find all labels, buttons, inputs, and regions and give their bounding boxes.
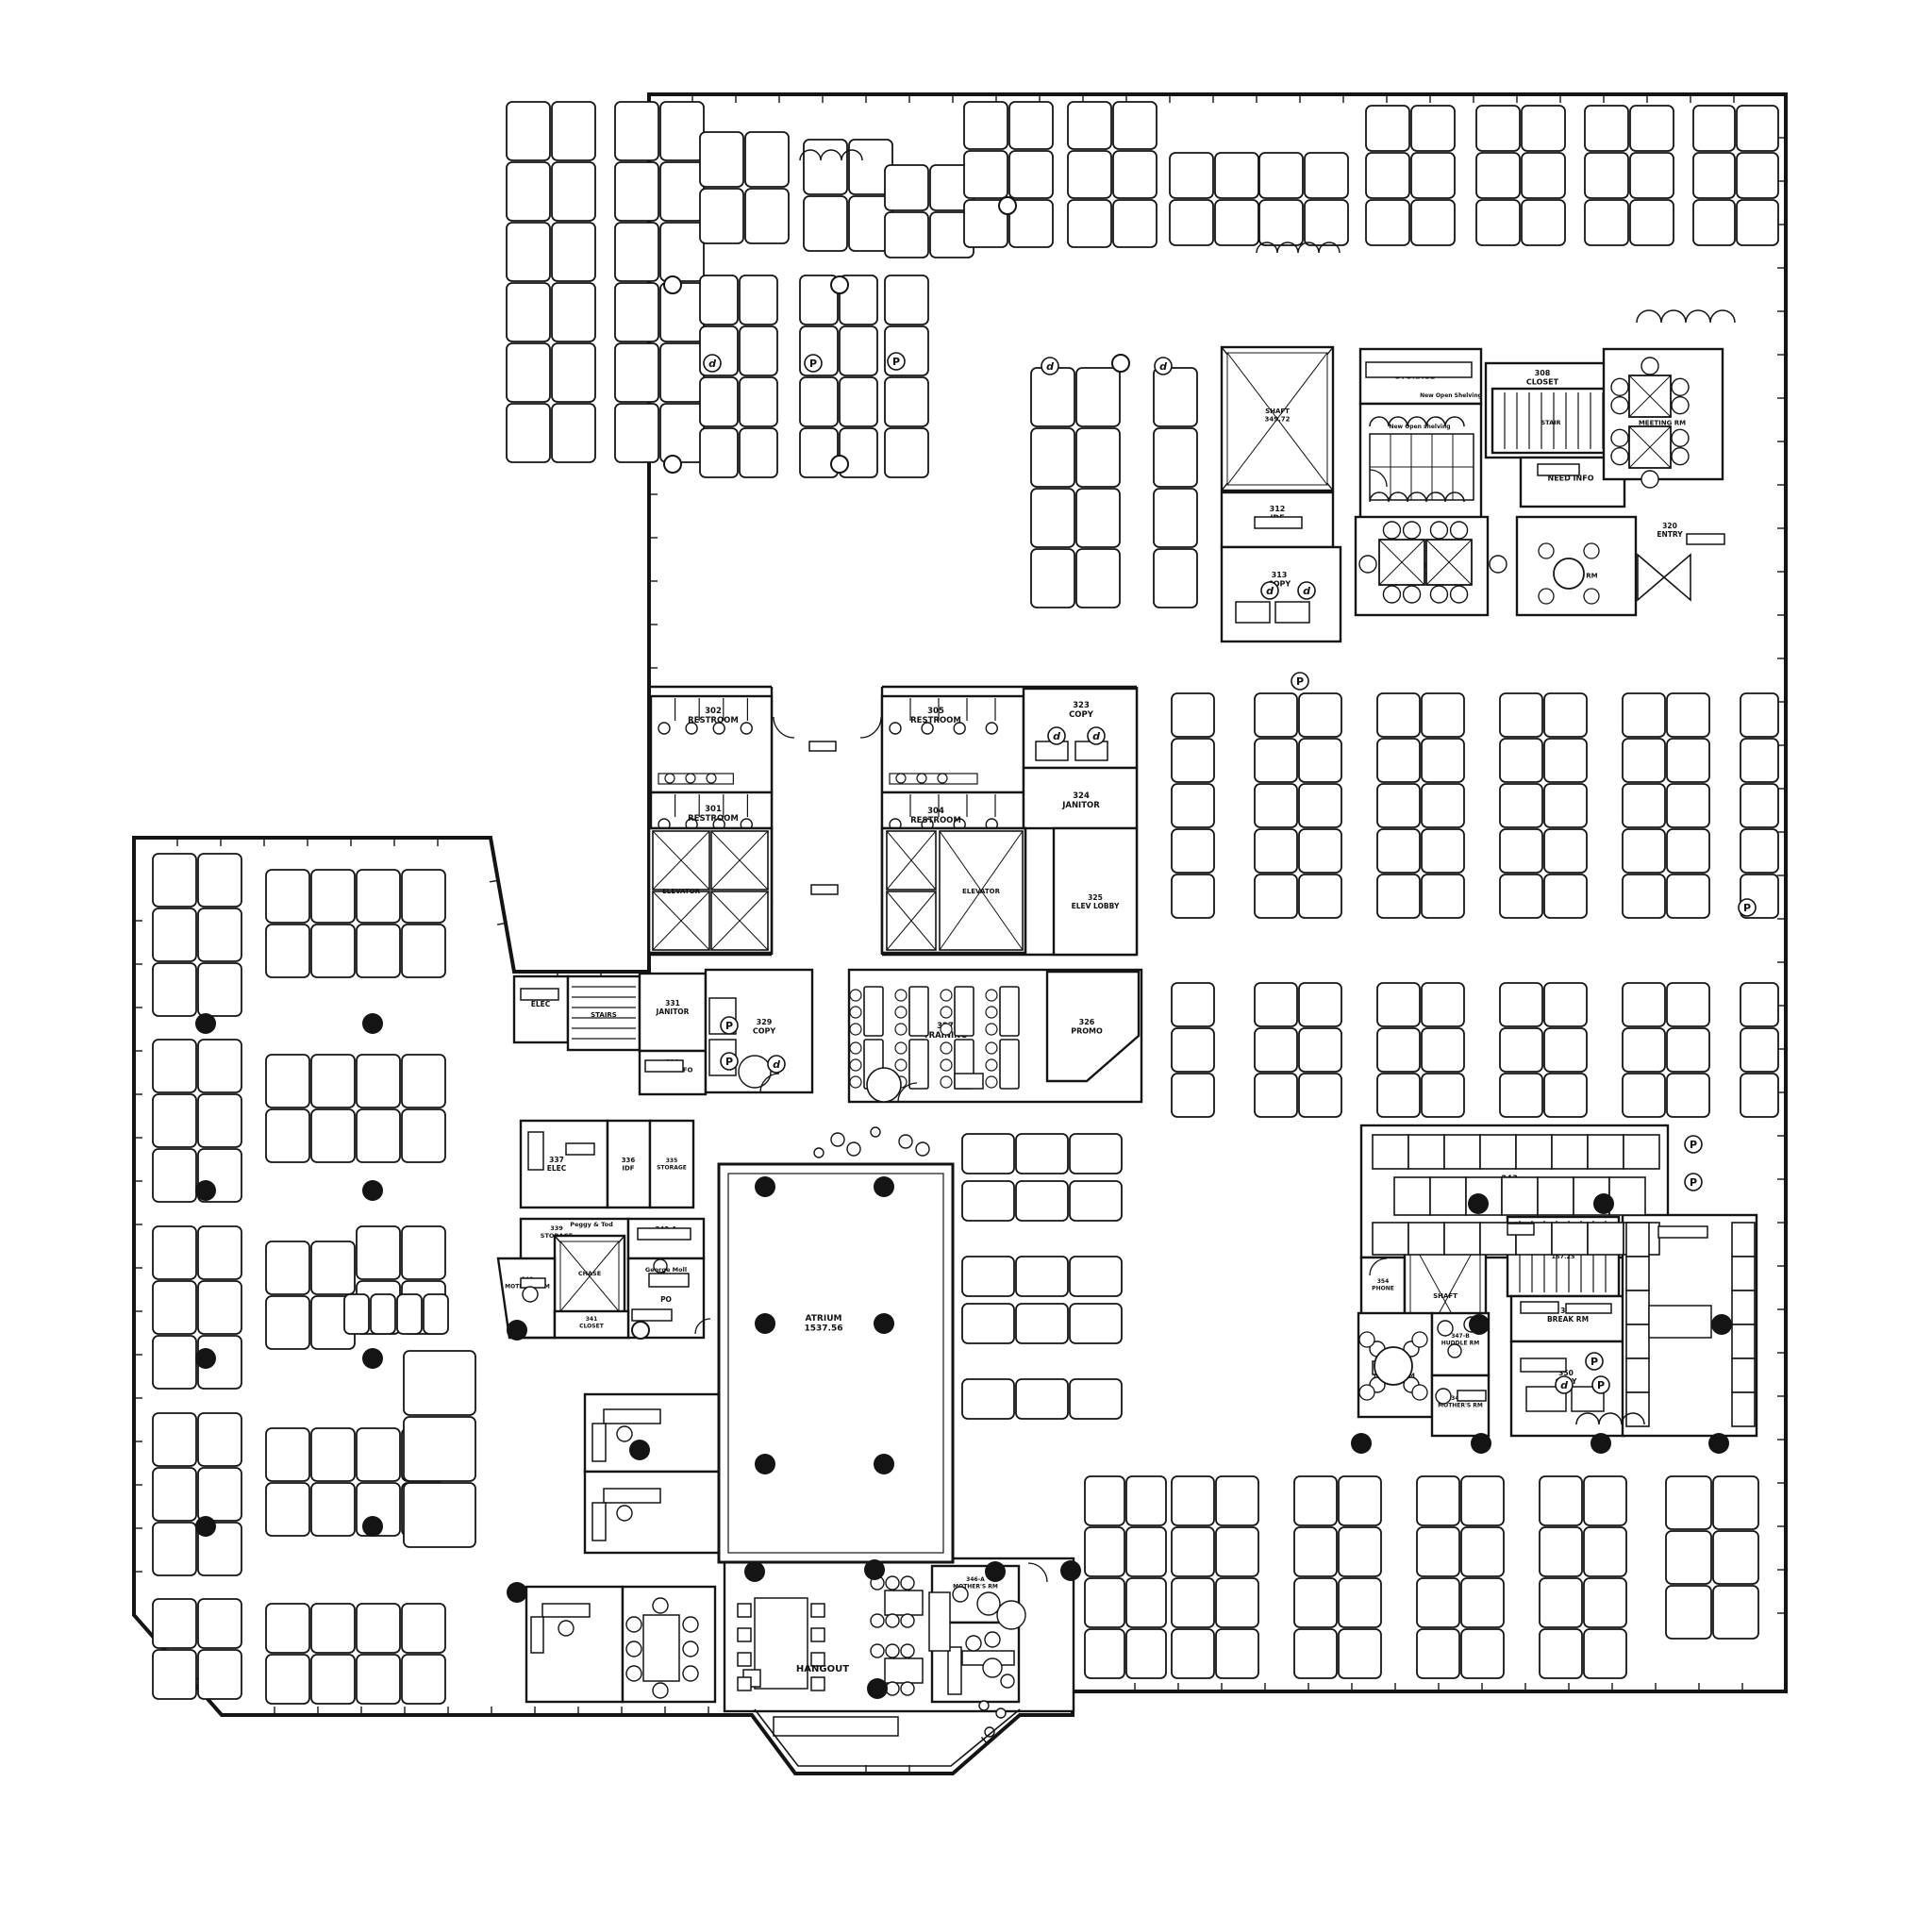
desk: [1476, 200, 1520, 245]
printer-symbol: P: [721, 1017, 738, 1034]
desk: [1031, 549, 1074, 608]
desk: [1068, 102, 1111, 149]
desk: [266, 1428, 309, 1481]
desk: [1339, 1527, 1381, 1576]
desk: [1031, 489, 1074, 547]
room-label: STAIRS: [591, 1011, 617, 1019]
desk: [700, 428, 738, 477]
symbol-letter: d: [1560, 1379, 1568, 1391]
desk: [1500, 829, 1542, 873]
desk: [1461, 1476, 1504, 1525]
desk: [153, 1468, 196, 1521]
desk: [800, 377, 838, 426]
atrium: [719, 1164, 953, 1562]
chair: [1539, 589, 1554, 604]
desk: [1740, 1028, 1778, 1072]
desk: [885, 275, 928, 325]
desk: [311, 1655, 355, 1704]
symbol-letter: d: [1053, 730, 1060, 742]
desk: [1713, 1476, 1758, 1529]
chair: [977, 1592, 1000, 1615]
column-open: [1112, 355, 1129, 372]
room-label: SHAFT: [1433, 1292, 1457, 1300]
column-filled: [755, 1313, 775, 1334]
room-313-copy: 313COPY: [1222, 547, 1341, 641]
chair: [1672, 397, 1689, 414]
desk: [1500, 693, 1542, 737]
training-table: [909, 1040, 928, 1089]
desk: [153, 1094, 196, 1147]
desk: [1299, 983, 1341, 1026]
presenter-table: [867, 1068, 901, 1102]
chair: [1584, 543, 1599, 558]
column-open: [632, 1322, 649, 1339]
desk: [1031, 368, 1074, 426]
desk: [357, 1655, 400, 1704]
chair: [1438, 1321, 1453, 1336]
desk: [1299, 874, 1341, 918]
chair: [1001, 1674, 1014, 1688]
chair: [953, 1587, 968, 1602]
desk: [1623, 784, 1665, 827]
desk: [311, 924, 355, 977]
chair: [617, 1426, 632, 1441]
chair: [886, 1614, 899, 1627]
desk: [615, 162, 658, 221]
desk: [1294, 1629, 1337, 1678]
training-chair: [850, 990, 861, 1001]
symbol-letter: P: [809, 358, 817, 370]
filing-bench-cell: [1430, 1177, 1466, 1215]
filing-bench-cell: [1444, 1135, 1480, 1169]
furniture-item: [649, 1274, 689, 1287]
desk: [1377, 829, 1420, 873]
desk: [507, 404, 550, 462]
furniture-item: [604, 1489, 660, 1503]
desk: [1667, 829, 1709, 873]
desk-pod: [962, 1304, 1122, 1343]
column-filled: [195, 1348, 216, 1369]
training-chair: [850, 1042, 861, 1054]
desk: [840, 377, 877, 426]
data-symbol: d: [1261, 582, 1278, 599]
furniture-item: [1538, 464, 1579, 475]
column-filled: [1469, 1314, 1490, 1335]
desk: [1667, 784, 1709, 827]
chair: [1451, 522, 1468, 539]
desk: [1476, 106, 1520, 151]
toilet-fixture: [658, 723, 670, 734]
desk: [1584, 1476, 1626, 1525]
chair: [1412, 1385, 1427, 1400]
desk: [885, 377, 928, 426]
chair: [1430, 522, 1447, 539]
desk: [800, 428, 838, 477]
chair: [916, 1142, 929, 1156]
desk: [198, 1040, 241, 1092]
column-open: [664, 276, 681, 293]
symbol-letter: P: [1690, 1176, 1697, 1189]
desk: [1255, 784, 1297, 827]
filing-bench-cell: [1394, 1177, 1430, 1215]
desk: [1339, 1476, 1381, 1525]
desk: [1666, 1476, 1711, 1529]
desk: [1713, 1531, 1758, 1584]
chair: [653, 1598, 668, 1613]
column-filled: [507, 1320, 527, 1341]
desk: [1476, 153, 1520, 198]
desk: [1085, 1527, 1124, 1576]
desk: [1172, 1629, 1214, 1678]
data-symbol: d: [1048, 727, 1065, 744]
chair: [871, 1127, 880, 1137]
furniture-item: [592, 1503, 606, 1541]
desk: [1255, 983, 1297, 1026]
desk: [1623, 739, 1665, 782]
mail-rack-cell: [1626, 1257, 1649, 1291]
filing-bench-cell: [1444, 1223, 1480, 1255]
desk: [615, 102, 658, 160]
data-symbol: d: [704, 355, 721, 372]
desk: [1172, 1074, 1214, 1117]
training-table: [955, 987, 974, 1036]
desk: [153, 908, 196, 961]
desk: [1667, 1028, 1709, 1072]
sink: [707, 774, 716, 783]
desk: [1113, 151, 1157, 198]
desk: [198, 963, 241, 1016]
room-331-janitor: 331JANITOR: [640, 974, 706, 1051]
furniture-item: [1566, 1304, 1611, 1313]
desk: [507, 102, 550, 160]
filing-bench-cell: [1552, 1135, 1588, 1169]
desk: [1630, 200, 1674, 245]
chair: [1412, 1332, 1427, 1347]
column-filled: [195, 1180, 216, 1201]
furniture-item: [948, 1647, 961, 1694]
annotation-text: ATRIUM1537.56: [805, 1314, 843, 1334]
desk: [1126, 1527, 1166, 1576]
room-324-janitor: 324JANITOR: [1024, 768, 1137, 828]
training-chair: [986, 1007, 997, 1018]
desk: [1585, 153, 1628, 198]
desk: [1377, 739, 1420, 782]
training-chair: [850, 1076, 861, 1088]
chair: [1611, 429, 1628, 446]
room-330-need-info: 330NEED INFO: [640, 1051, 706, 1094]
desk: [153, 1599, 196, 1648]
desk: [1667, 693, 1709, 737]
desk: [1667, 874, 1709, 918]
desk: [1070, 1134, 1122, 1174]
desk: [804, 196, 847, 251]
desk: [1172, 829, 1214, 873]
desk: [1417, 1527, 1459, 1576]
desk: [1666, 1586, 1711, 1639]
desk: [1294, 1578, 1337, 1627]
desk: [700, 189, 743, 243]
desk: [402, 870, 445, 923]
training-chair: [941, 1042, 952, 1054]
chair: [901, 1644, 914, 1657]
furniture-item: [566, 1143, 594, 1155]
desk: [552, 223, 595, 281]
desk: [1740, 739, 1778, 782]
desk: [402, 1604, 445, 1653]
room-302-restroom: 302RESTROOM: [651, 696, 772, 792]
mail-rack-cell: [1732, 1291, 1755, 1324]
desk: [840, 326, 877, 375]
desk: [1154, 549, 1197, 608]
desk: [1172, 739, 1214, 782]
desk: [615, 223, 658, 281]
printer-symbol: P: [1586, 1353, 1603, 1370]
furniture-item: [885, 1658, 923, 1683]
furniture-item: [643, 1615, 679, 1681]
desk: [962, 1379, 1014, 1419]
chair: [1641, 358, 1658, 375]
room-label: 336IDF: [622, 1157, 636, 1173]
desk: [552, 162, 595, 221]
desk: [1540, 1476, 1582, 1525]
desk-pod: [962, 1181, 1122, 1221]
furniture-item: [632, 1309, 672, 1321]
printer-symbol: P: [888, 353, 905, 370]
desk: [700, 132, 743, 187]
desk: [266, 1483, 309, 1536]
desk: [371, 1294, 395, 1334]
data-symbol: d: [1556, 1376, 1573, 1393]
chair: [617, 1506, 632, 1521]
training-chair: [850, 1059, 861, 1071]
furniture-item: [521, 1278, 545, 1288]
desk: [311, 1055, 355, 1108]
training-chair: [941, 1024, 952, 1035]
room-305-restroom: 305RESTROOM: [882, 696, 1024, 792]
desk: [1305, 200, 1348, 245]
desk: [552, 283, 595, 341]
desk: [740, 326, 777, 375]
desk-pod: [1740, 983, 1778, 1117]
chair: [886, 1682, 899, 1695]
desk: [1070, 1181, 1122, 1221]
symbol-letter: d: [1092, 730, 1100, 742]
desk: [1154, 428, 1197, 487]
desk: [1584, 1578, 1626, 1627]
desk: [1585, 200, 1628, 245]
desk: [660, 343, 704, 402]
filing-bench-cell: [1502, 1177, 1538, 1215]
desk: [1500, 739, 1542, 782]
filing-bench-cell: [1373, 1135, 1408, 1169]
desk: [1693, 106, 1735, 151]
desk: [1422, 693, 1464, 737]
chair: [983, 1658, 1002, 1677]
furniture-item: [531, 1617, 543, 1653]
sink: [665, 774, 675, 783]
open-shelving: [1370, 434, 1474, 500]
desk: [1294, 1476, 1337, 1525]
desk: [1009, 102, 1053, 149]
desk: [1500, 874, 1542, 918]
chair: [831, 1133, 844, 1146]
column-filled: [867, 1678, 888, 1699]
chair: [1383, 586, 1400, 603]
room-chase: CHASE: [555, 1236, 625, 1317]
desk-pod: [1172, 693, 1214, 918]
training-chair: [895, 1007, 907, 1018]
column-open: [831, 456, 848, 473]
chair: [683, 1641, 698, 1657]
mail-rack-cell: [1732, 1257, 1755, 1291]
desk: [1500, 784, 1542, 827]
furniture-item: [1275, 602, 1309, 623]
desk: [1544, 1074, 1587, 1117]
desk: [1366, 106, 1409, 151]
desk: [266, 1241, 309, 1294]
sink: [896, 774, 906, 783]
chair: [1611, 448, 1628, 465]
desk: [1544, 983, 1587, 1026]
desk: [1544, 1028, 1587, 1072]
filing-bench-cell: [1408, 1223, 1444, 1255]
furniture-item: [1036, 741, 1068, 760]
desk: [1339, 1578, 1381, 1627]
chair: [683, 1666, 698, 1681]
column-open: [831, 276, 848, 293]
desk: [1623, 693, 1665, 737]
desk: [1170, 200, 1213, 245]
training-chair: [986, 1024, 997, 1035]
desk: [1366, 200, 1409, 245]
filing-bench-cell: [1624, 1135, 1659, 1169]
desk-pod: [1172, 983, 1214, 1117]
chair: [997, 1601, 1025, 1629]
training-table: [909, 987, 928, 1036]
desk: [1377, 1074, 1420, 1117]
atrium-inner: [728, 1174, 943, 1553]
desk: [1068, 151, 1111, 198]
desk: [1377, 693, 1420, 737]
desk: [1172, 874, 1214, 918]
desk: [1172, 784, 1214, 827]
training-chair: [941, 1059, 952, 1071]
floor-plan: 302RESTROOM301RESTROOM305RESTROOM304REST…: [0, 0, 1932, 1932]
column-filled: [1468, 1193, 1489, 1214]
symbol-letter: d: [1303, 585, 1310, 597]
furniture-item: [738, 1653, 751, 1666]
desk: [1544, 784, 1587, 827]
desk: [1172, 983, 1214, 1026]
desk: [1070, 1379, 1122, 1419]
desk: [1031, 428, 1074, 487]
desk: [1540, 1629, 1582, 1678]
desk: [153, 1413, 196, 1466]
furniture-item: [811, 885, 838, 894]
column-filled: [1708, 1433, 1729, 1454]
furniture-item: [1255, 517, 1302, 528]
furniture-item: [1507, 1224, 1534, 1235]
desk: [1216, 1527, 1258, 1576]
desk: [404, 1351, 475, 1415]
desk: [1623, 874, 1665, 918]
desk: [804, 140, 847, 194]
desk: [1630, 153, 1674, 198]
desk: [1411, 200, 1455, 245]
desk: [1299, 1074, 1341, 1117]
column-filled: [985, 1561, 1006, 1582]
column-filled: [507, 1582, 527, 1603]
chair: [901, 1614, 914, 1627]
desk: [1016, 1379, 1068, 1419]
desk: [1411, 153, 1455, 198]
desk: [1544, 693, 1587, 737]
desk: [266, 1604, 309, 1653]
chair: [1672, 448, 1689, 465]
column-filled: [874, 1176, 894, 1197]
desk: [962, 1304, 1014, 1343]
desk: [552, 102, 595, 160]
desk: [1544, 874, 1587, 918]
desk: [153, 1523, 196, 1575]
symbol-letter: d: [1159, 360, 1167, 373]
room-325-elev-lobby: 325ELEV LOBBY: [1054, 828, 1137, 955]
mail-rack-cell: [1732, 1358, 1755, 1392]
desk: [660, 102, 704, 160]
training-chair: [941, 990, 952, 1001]
desk: [1693, 153, 1735, 198]
desk: [1113, 102, 1157, 149]
desk: [1259, 153, 1303, 198]
annotation-text: HANGOUT: [796, 1664, 849, 1674]
annotation-text: New Open Shelving: [1420, 392, 1482, 399]
desk: [153, 1650, 196, 1699]
desk: [1713, 1586, 1758, 1639]
chair: [1539, 543, 1554, 558]
annotation-text: New Open shelving: [1389, 424, 1450, 430]
printer-symbol: P: [1291, 673, 1308, 690]
desk: [740, 377, 777, 426]
room-wall: [1054, 828, 1137, 955]
printer-symbol: P: [1739, 899, 1756, 916]
symbol-letter: P: [1597, 1379, 1605, 1391]
furniture-item: [738, 1677, 751, 1690]
filing-bench-cell: [1552, 1223, 1588, 1255]
furniture-item: [1236, 602, 1270, 623]
desk: [266, 924, 309, 977]
desk: [745, 132, 789, 187]
desk: [1170, 153, 1213, 198]
furniture-item: [811, 1604, 824, 1617]
sink: [686, 774, 695, 783]
desk: [1016, 1257, 1068, 1296]
desk: [1667, 739, 1709, 782]
desk: [1422, 1028, 1464, 1072]
furniture-item: [738, 1604, 751, 1617]
room-341-closet: 341CLOSET: [555, 1311, 628, 1338]
desk: [402, 924, 445, 977]
room-label: SHAFT349.72: [1264, 408, 1290, 424]
desk: [700, 377, 738, 426]
desk: [1172, 1028, 1214, 1072]
desk: [1422, 829, 1464, 873]
desk: [660, 223, 704, 281]
desk: [1522, 200, 1565, 245]
room-336-idf: 336IDF: [608, 1121, 650, 1207]
filing-bench-cell: [1373, 1223, 1408, 1255]
toilet-fixture: [890, 723, 901, 734]
desk: [397, 1294, 422, 1334]
